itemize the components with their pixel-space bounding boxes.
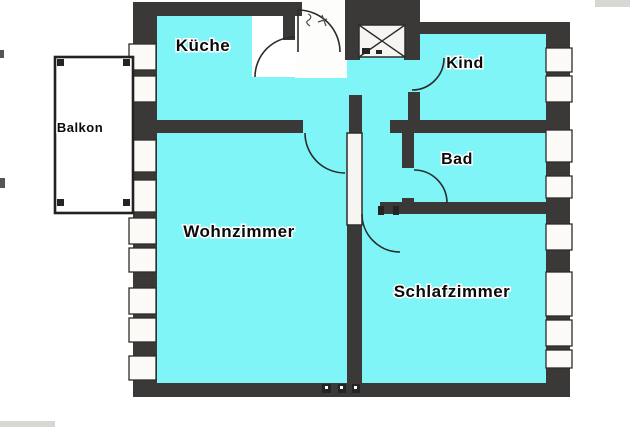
wall-segment-kind-bad: [390, 120, 548, 133]
balcony-corner-marker: [123, 199, 130, 206]
wall-segment-central-open: [347, 133, 362, 225]
entrance-vestibule: [295, 0, 347, 78]
room-label-schlafzimmer: Schlafzimmer: [394, 282, 511, 301]
scan-artifact: [0, 50, 4, 58]
room-label-kind: Kind: [446, 55, 484, 72]
window: [546, 224, 572, 250]
balcony: [55, 57, 133, 213]
wall-segment-hall-kind-upper: [408, 34, 420, 58]
window: [546, 320, 572, 346]
wall-segment-kind-top: [406, 22, 548, 34]
window: [129, 288, 156, 314]
balcony-outline: [55, 57, 133, 213]
window: [546, 76, 572, 102]
bottom-wall-fittings: [322, 384, 360, 393]
wall-segment-central-stub: [349, 95, 362, 135]
window: [546, 48, 572, 72]
wall-segment-kueche-wohnzimmer: [155, 120, 303, 133]
wall-segment-bottom: [133, 383, 570, 397]
window: [546, 130, 572, 162]
wall-segment-entrance-right: [345, 0, 360, 60]
door-jamb-marker: [378, 206, 384, 215]
balcony-corner-marker: [123, 59, 130, 66]
window: [129, 218, 156, 244]
window: [129, 248, 156, 272]
fitting-symbol-notch: [354, 386, 357, 389]
wall-segment-hall-kind-lower: [408, 92, 420, 122]
balcony-corner-marker: [57, 199, 64, 206]
window: [129, 356, 156, 380]
room-label-kueche: Küche: [176, 36, 230, 55]
room-label-wohnzimmer: Wohnzimmer: [183, 222, 294, 241]
stair-shaft: [359, 25, 405, 57]
window: [129, 318, 156, 342]
floorplan-canvas: Küche Kind Bad Wohnzimmer Schlafzimmer B…: [0, 0, 638, 430]
stair-shaft-mark: [362, 48, 370, 54]
wall-segment-bad-left-upper: [402, 133, 414, 168]
scan-artifact: [0, 421, 55, 427]
wall-segment-kueche-vestibule: [283, 8, 295, 40]
balcony-corner-marker: [57, 59, 64, 66]
window: [546, 350, 572, 368]
wall-segment-top: [133, 2, 302, 16]
scan-artifact: [595, 0, 630, 7]
window: [546, 272, 572, 316]
room-label-bad: Bad: [441, 151, 473, 168]
fitting-symbol-notch: [340, 386, 343, 389]
wall-segment-central-lower: [347, 225, 362, 385]
scan-artifact: [0, 178, 5, 188]
window: [546, 176, 572, 198]
door-jamb-marker: [393, 206, 399, 215]
floor-plan-svg: Küche Kind Bad Wohnzimmer Schlafzimmer B…: [0, 0, 638, 430]
room-label-balkon: Balkon: [57, 120, 103, 135]
fitting-symbol-notch: [325, 386, 328, 389]
stair-shaft-mark: [376, 50, 382, 54]
wall-segment-bad-bottom: [380, 202, 548, 214]
